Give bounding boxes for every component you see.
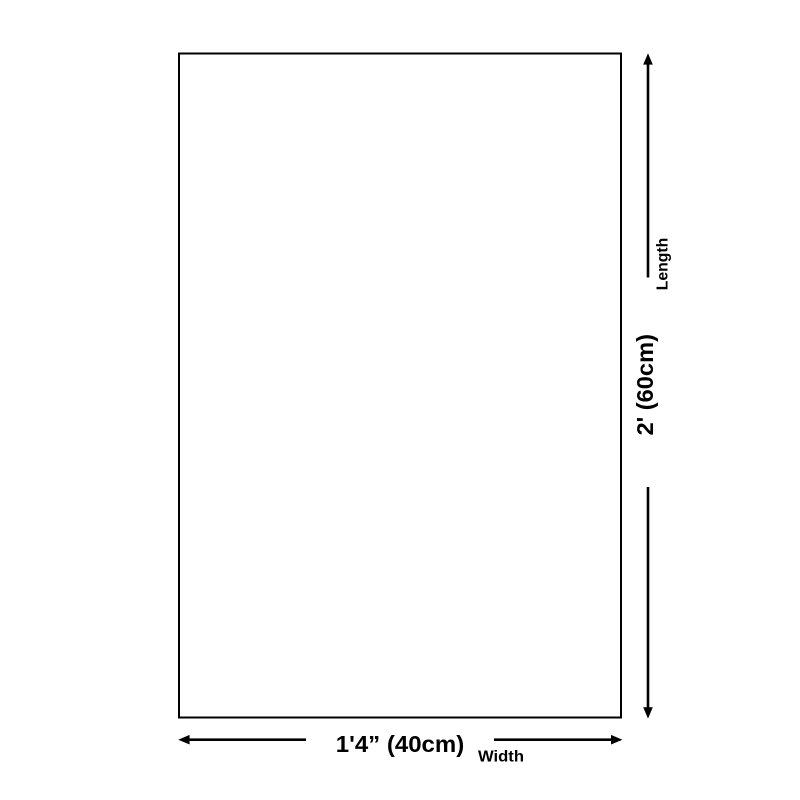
svg-text:1'4” (40cm): 1'4” (40cm): [336, 731, 465, 757]
svg-text:Length: Length: [655, 238, 672, 291]
svg-text:Width: Width: [478, 749, 524, 766]
svg-text:2' (60cm): 2' (60cm): [632, 334, 658, 436]
